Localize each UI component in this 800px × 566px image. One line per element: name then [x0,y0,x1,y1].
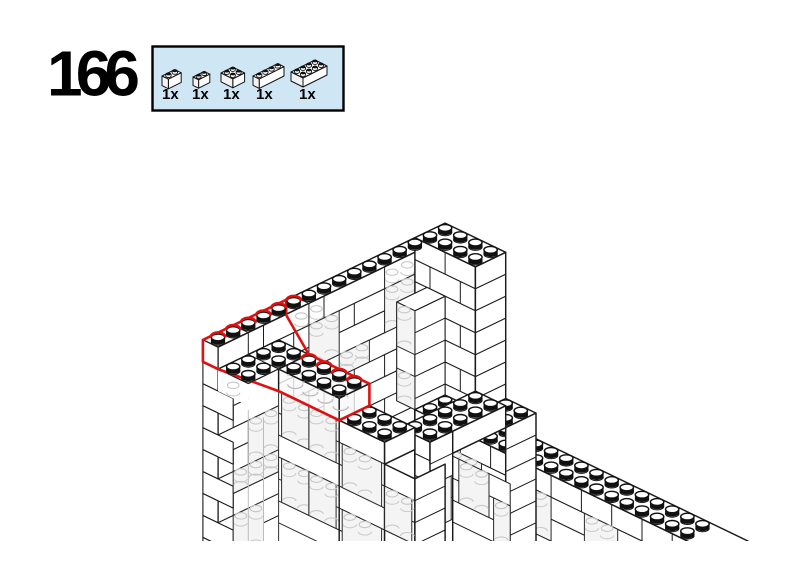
svg-text:1x: 1x [223,86,240,103]
svg-text:1x: 1x [162,86,179,103]
svg-text:166: 166 [47,38,140,110]
svg-text:1x: 1x [299,86,316,103]
svg-text:1x: 1x [192,86,209,103]
svg-text:1x: 1x [256,86,273,103]
